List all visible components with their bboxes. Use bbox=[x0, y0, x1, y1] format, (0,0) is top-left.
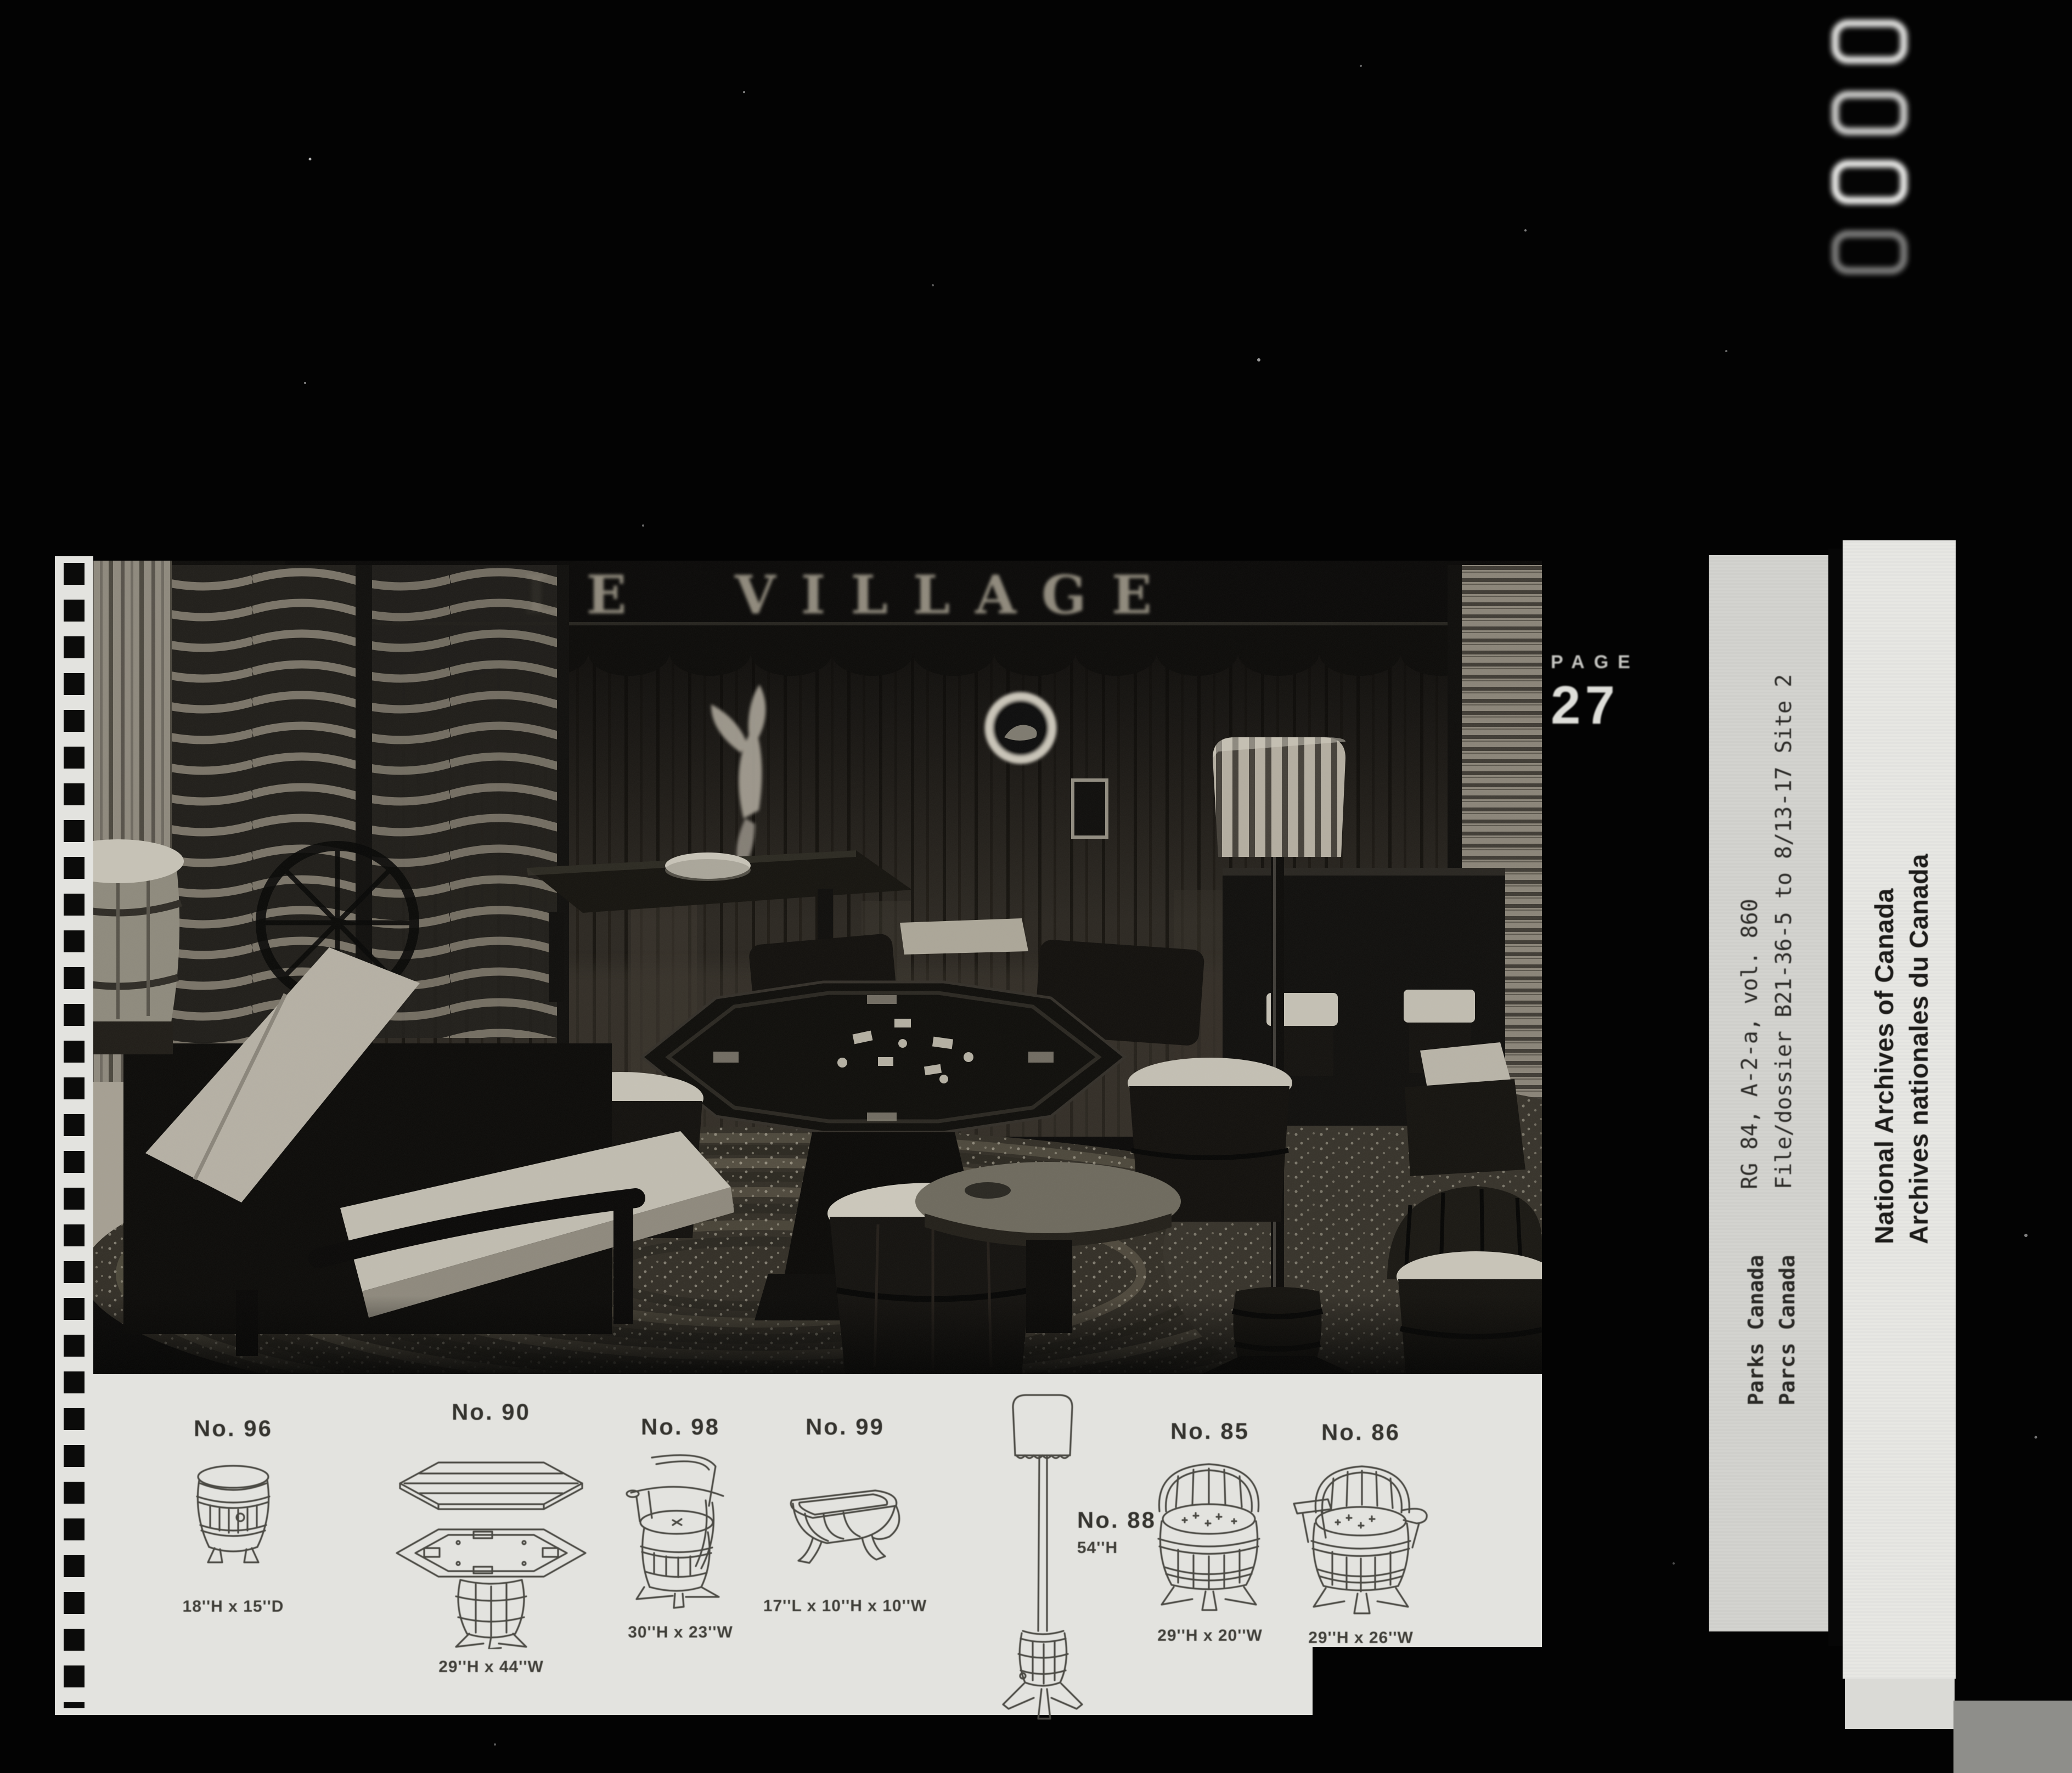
item-dimensions: 29''H x 44''W bbox=[438, 1658, 544, 1676]
item-dimensions: 17''L x 10''H x 10''W bbox=[763, 1597, 927, 1616]
counter-mark-icon bbox=[1832, 230, 1907, 274]
counter-mark-icon bbox=[1832, 91, 1907, 135]
film-sprocket-strip bbox=[55, 556, 93, 1715]
catalog-item-90: No. 90 29''H x 44''W bbox=[384, 1399, 598, 1676]
page-number: 27 bbox=[1551, 674, 1640, 736]
microfilm-frame: LE VILLAGE bbox=[0, 0, 2072, 1773]
catalog-strip: No. 96 18''H x 15''D No. 90 bbox=[55, 1374, 1542, 1647]
strip-gap bbox=[1828, 549, 1843, 1646]
half-barrel-drawing bbox=[776, 1474, 914, 1573]
reference-text: RG 84, A-2-a, vol. 860 File/dossier B21-… bbox=[1733, 674, 1801, 1189]
item-dimensions: 54''H bbox=[1043, 1539, 1152, 1557]
item-dimensions: 18''H x 15''D bbox=[183, 1597, 284, 1616]
showroom-photograph: LE VILLAGE bbox=[55, 561, 1542, 1374]
catalog-item-85: No. 85 29''H x 20''W bbox=[1144, 1418, 1276, 1645]
sprocket-holes bbox=[64, 563, 85, 1708]
counter-mark-icon bbox=[1832, 160, 1907, 204]
film-grain bbox=[55, 561, 1542, 1374]
floor-lamp-drawing bbox=[977, 1391, 1108, 1725]
item-number-label: No. 85 bbox=[1170, 1418, 1249, 1444]
item-number-label: No. 98 bbox=[641, 1414, 720, 1440]
game-table-drawing bbox=[392, 1435, 590, 1649]
captain-chair-drawing bbox=[620, 1449, 741, 1613]
institution-strip-foot bbox=[1845, 1679, 1955, 1729]
frame-corner-band bbox=[1953, 1701, 2072, 1773]
page-label: PAGE bbox=[1551, 652, 1640, 673]
item-dimensions: 29''H x 26''W bbox=[1308, 1629, 1414, 1647]
counter-mark-icon bbox=[1832, 20, 1907, 64]
agency-text: Parks Canada Parcs Canada bbox=[1741, 1255, 1803, 1405]
barrel-end-table-drawing bbox=[184, 1460, 283, 1576]
institution-text: National Archives of Canada Archives nat… bbox=[1867, 854, 1936, 1244]
item-number-label: No. 86 bbox=[1321, 1419, 1400, 1445]
catalog-item-96: No. 96 18''H x 15''D bbox=[173, 1415, 294, 1616]
catalog-item-99: No. 99 17''L x 10''H x 10''W bbox=[774, 1414, 916, 1616]
item-number-label: No. 90 bbox=[452, 1399, 531, 1425]
item-number-label: No. 96 bbox=[194, 1415, 273, 1442]
item-dimensions: 30''H x 23''W bbox=[628, 1623, 733, 1642]
arm-chair-drawing bbox=[1290, 1453, 1432, 1618]
item-dimensions: 29''H x 20''W bbox=[1157, 1627, 1263, 1645]
tub-chair-drawing bbox=[1144, 1452, 1276, 1617]
item-number-label: No. 99 bbox=[806, 1414, 885, 1440]
catalog-item-86: No. 86 29''H x 26''W bbox=[1287, 1419, 1435, 1647]
page-indicator: PAGE 27 bbox=[1551, 652, 1640, 736]
catalog-item-98: No. 98 30''H x 23''W bbox=[615, 1414, 746, 1642]
catalog-item-88: No. 88 54''H bbox=[966, 1380, 1130, 1720]
